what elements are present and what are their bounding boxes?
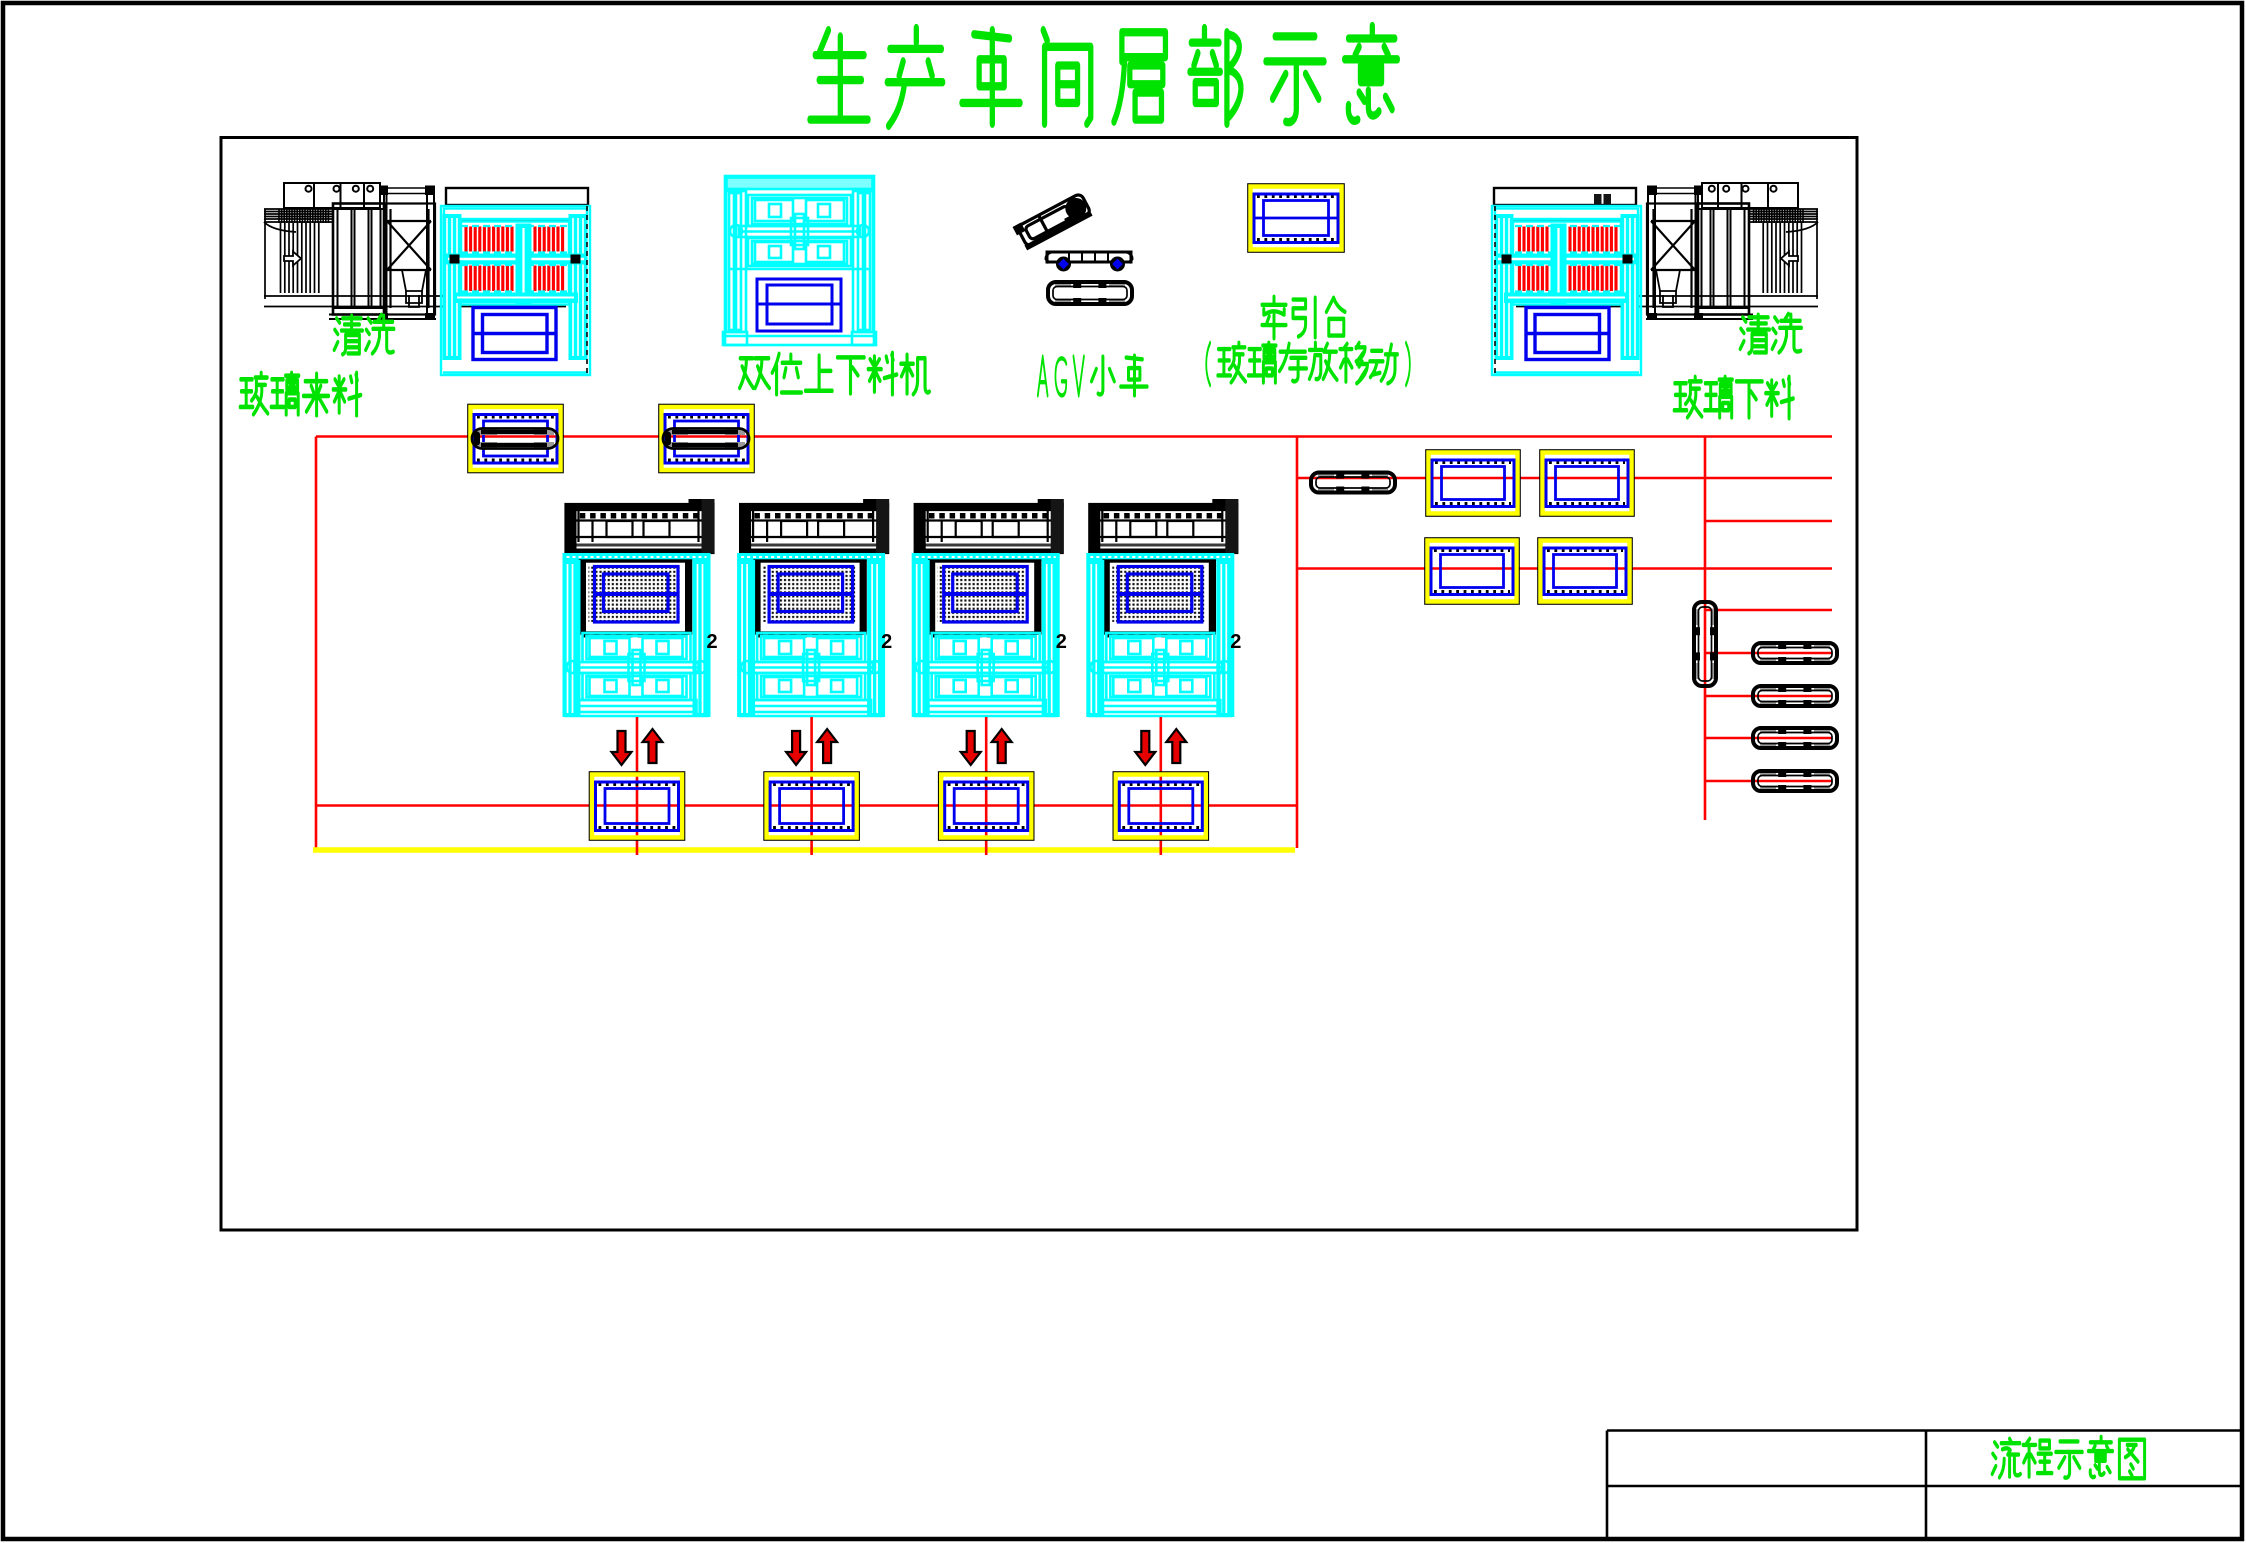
svg-text:2: 2 [881,631,892,653]
svg-text:2: 2 [1056,631,1067,653]
svg-text:2: 2 [1230,631,1241,653]
svg-text:2: 2 [707,631,718,653]
